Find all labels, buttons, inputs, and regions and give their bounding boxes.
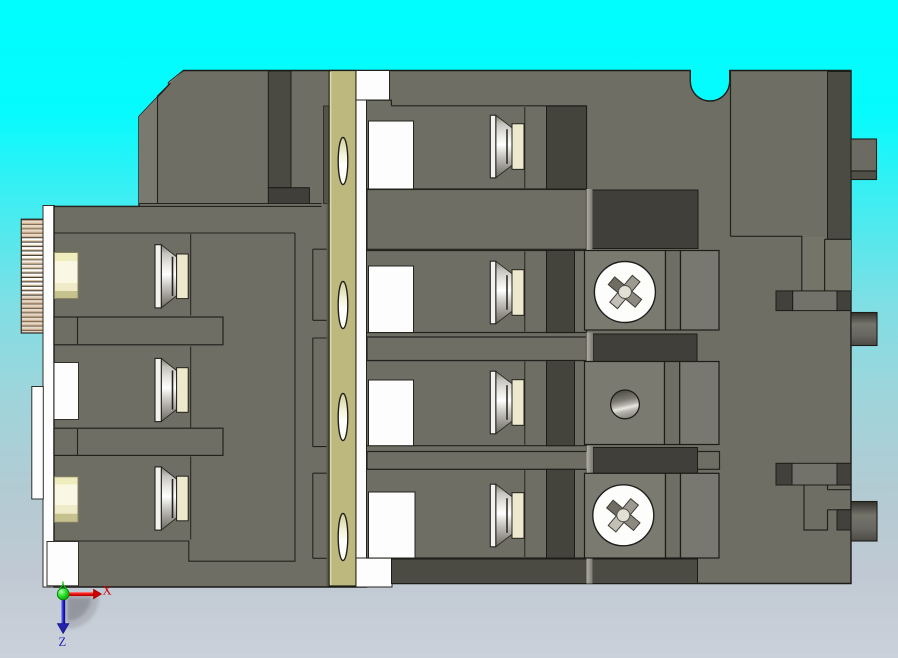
svg-text:Z: Z <box>59 635 67 649</box>
svg-text:X: X <box>103 584 112 598</box>
